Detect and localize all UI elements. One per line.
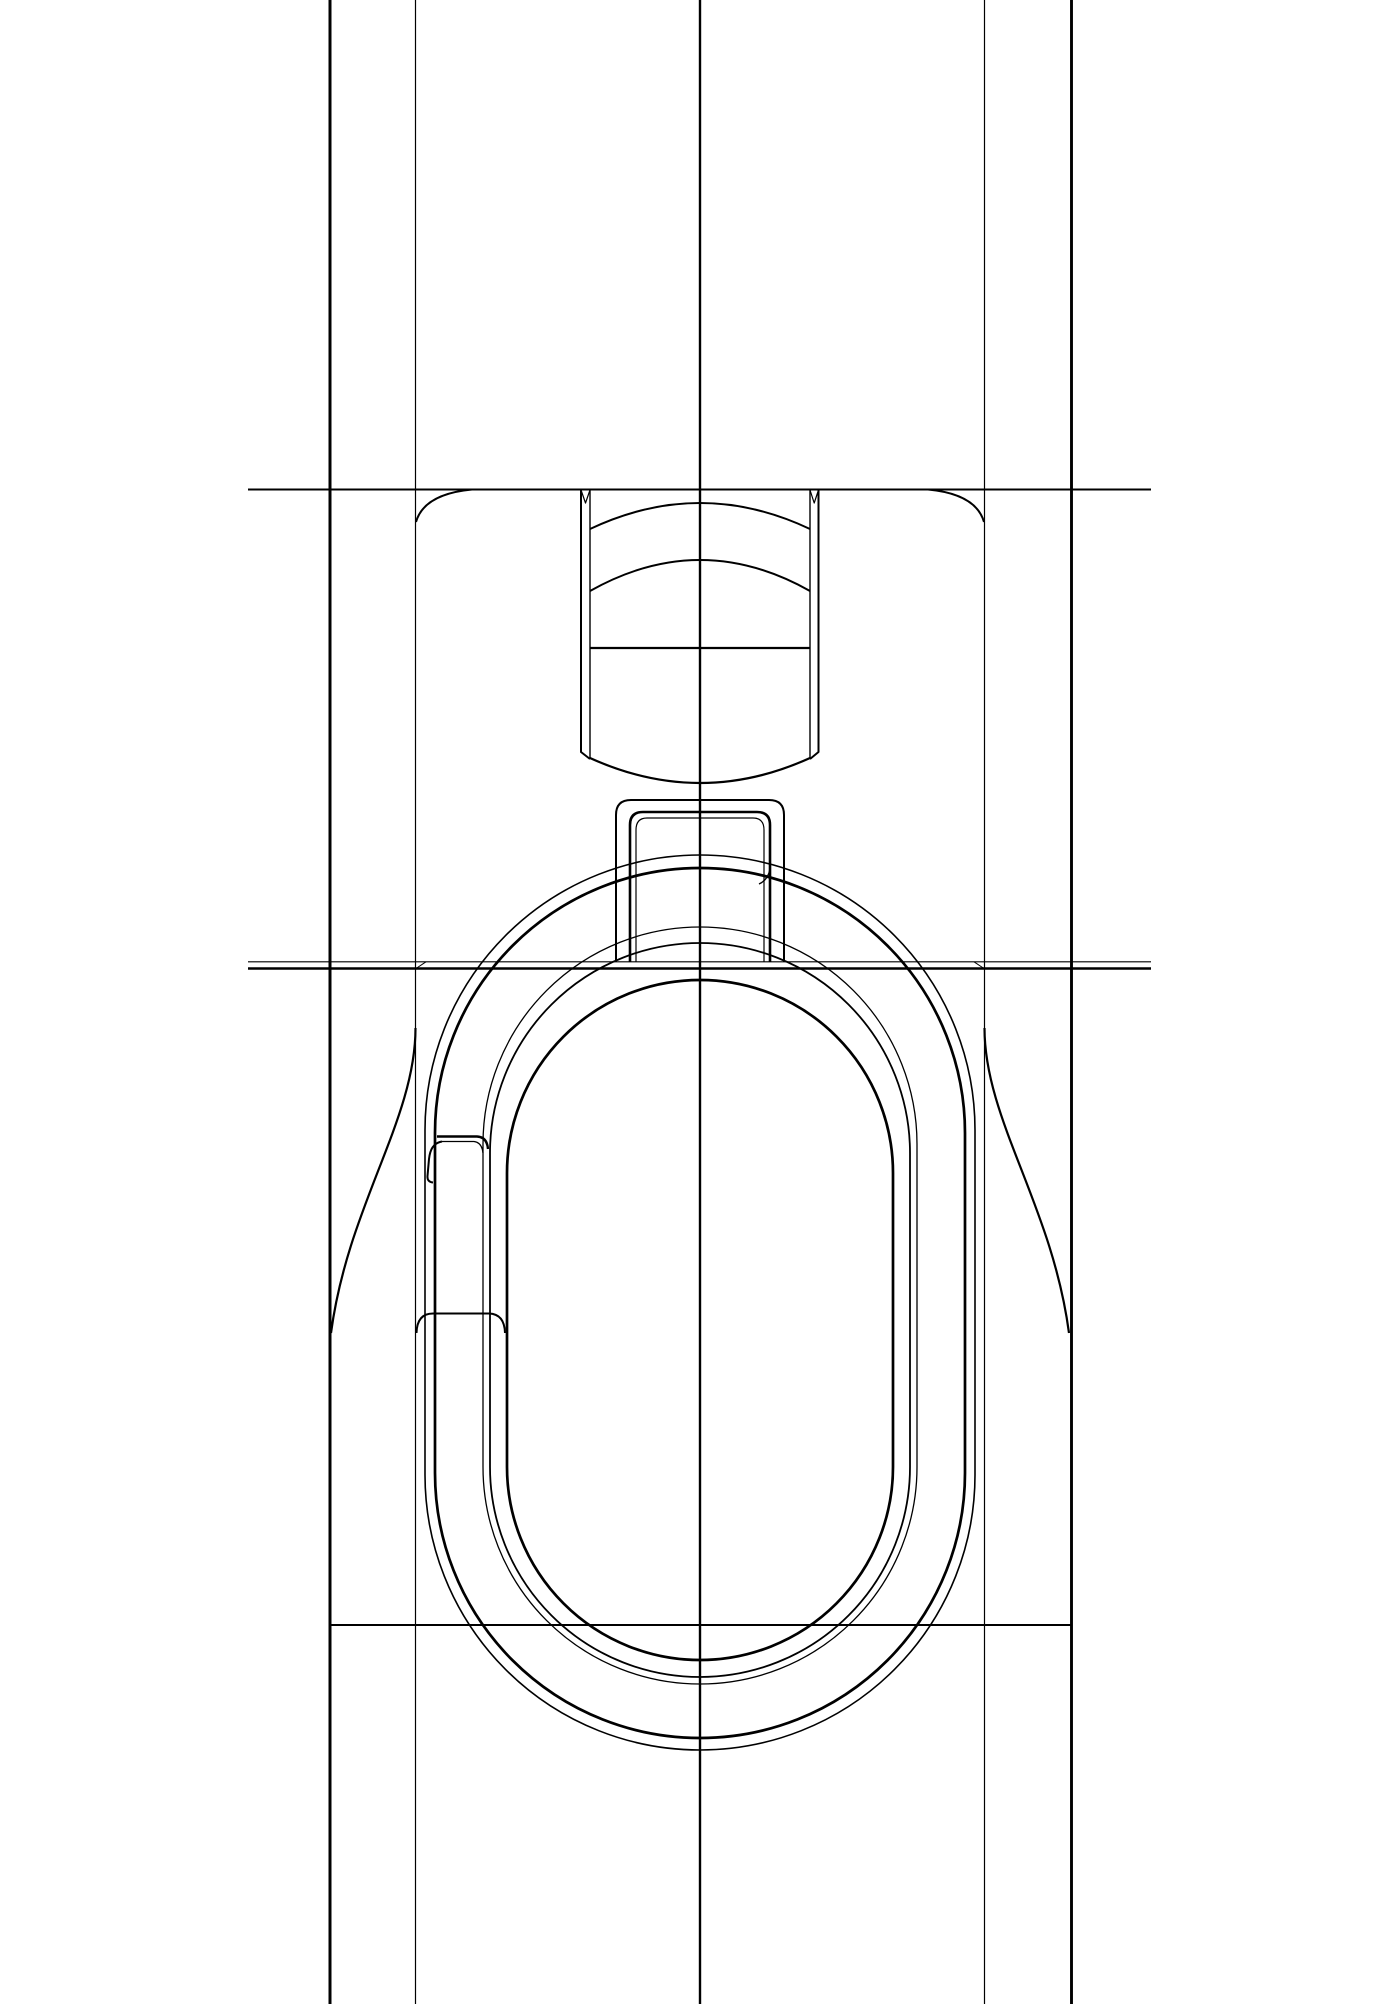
body-corner-left — [416, 490, 472, 523]
body-corner-right — [928, 490, 984, 523]
neck-notch-right — [810, 490, 819, 503]
neck-wall-left-outer — [581, 490, 590, 760]
gate-ledge-upper — [437, 1137, 488, 1150]
flare-curve-right — [985, 1028, 1070, 1333]
neck-wall-right-outer — [810, 490, 819, 760]
gate-bottom-bridge — [417, 1314, 506, 1334]
flare-curve-left — [331, 1028, 416, 1333]
neck-notch-left — [581, 490, 590, 503]
technical-drawing-canvas — [0, 0, 1400, 2004]
technical-drawing-page — [0, 0, 1400, 2004]
gate-ledge-lower — [442, 1142, 483, 1154]
